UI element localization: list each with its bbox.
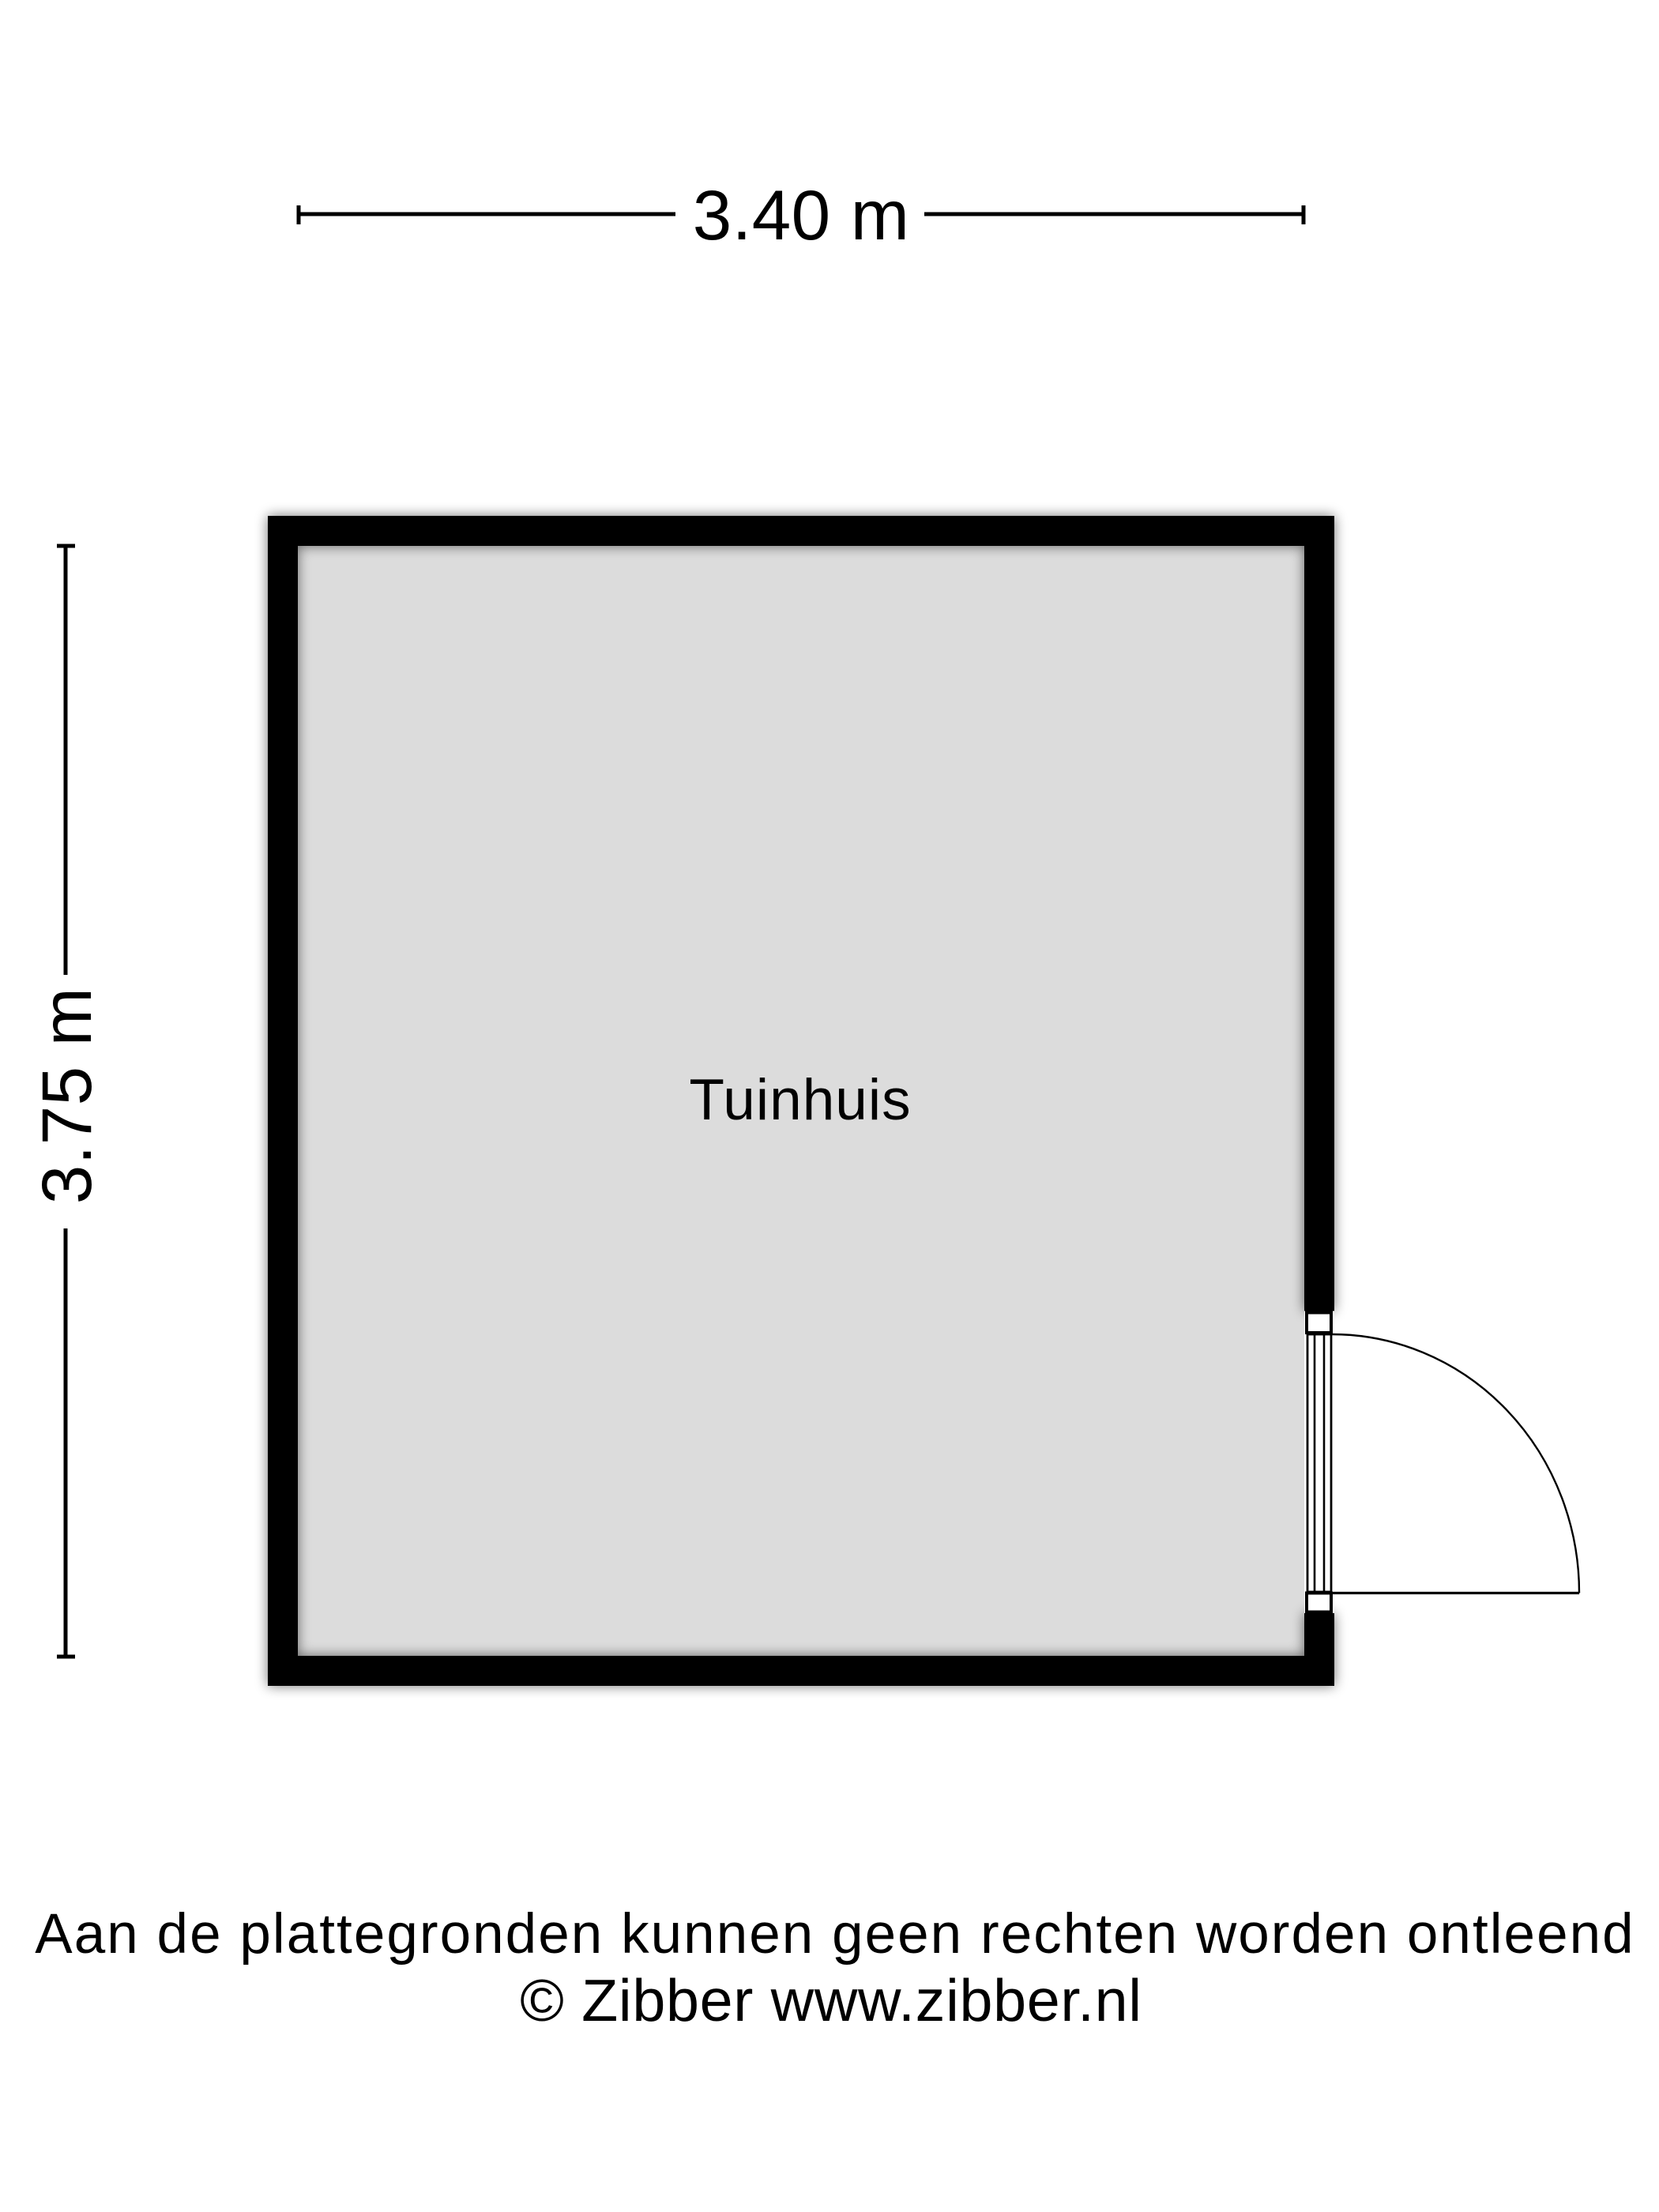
svg-text:Tuinhuis: Tuinhuis — [689, 1068, 911, 1132]
svg-text:© Zibber www.zibber.nl: © Zibber www.zibber.nl — [520, 1967, 1142, 2033]
svg-text:Aan de plattegronden kunnen ge: Aan de plattegronden kunnen geen rechten… — [35, 1903, 1635, 1966]
svg-text:3.75 m: 3.75 m — [27, 987, 106, 1205]
svg-text:3.40 m: 3.40 m — [693, 175, 910, 254]
